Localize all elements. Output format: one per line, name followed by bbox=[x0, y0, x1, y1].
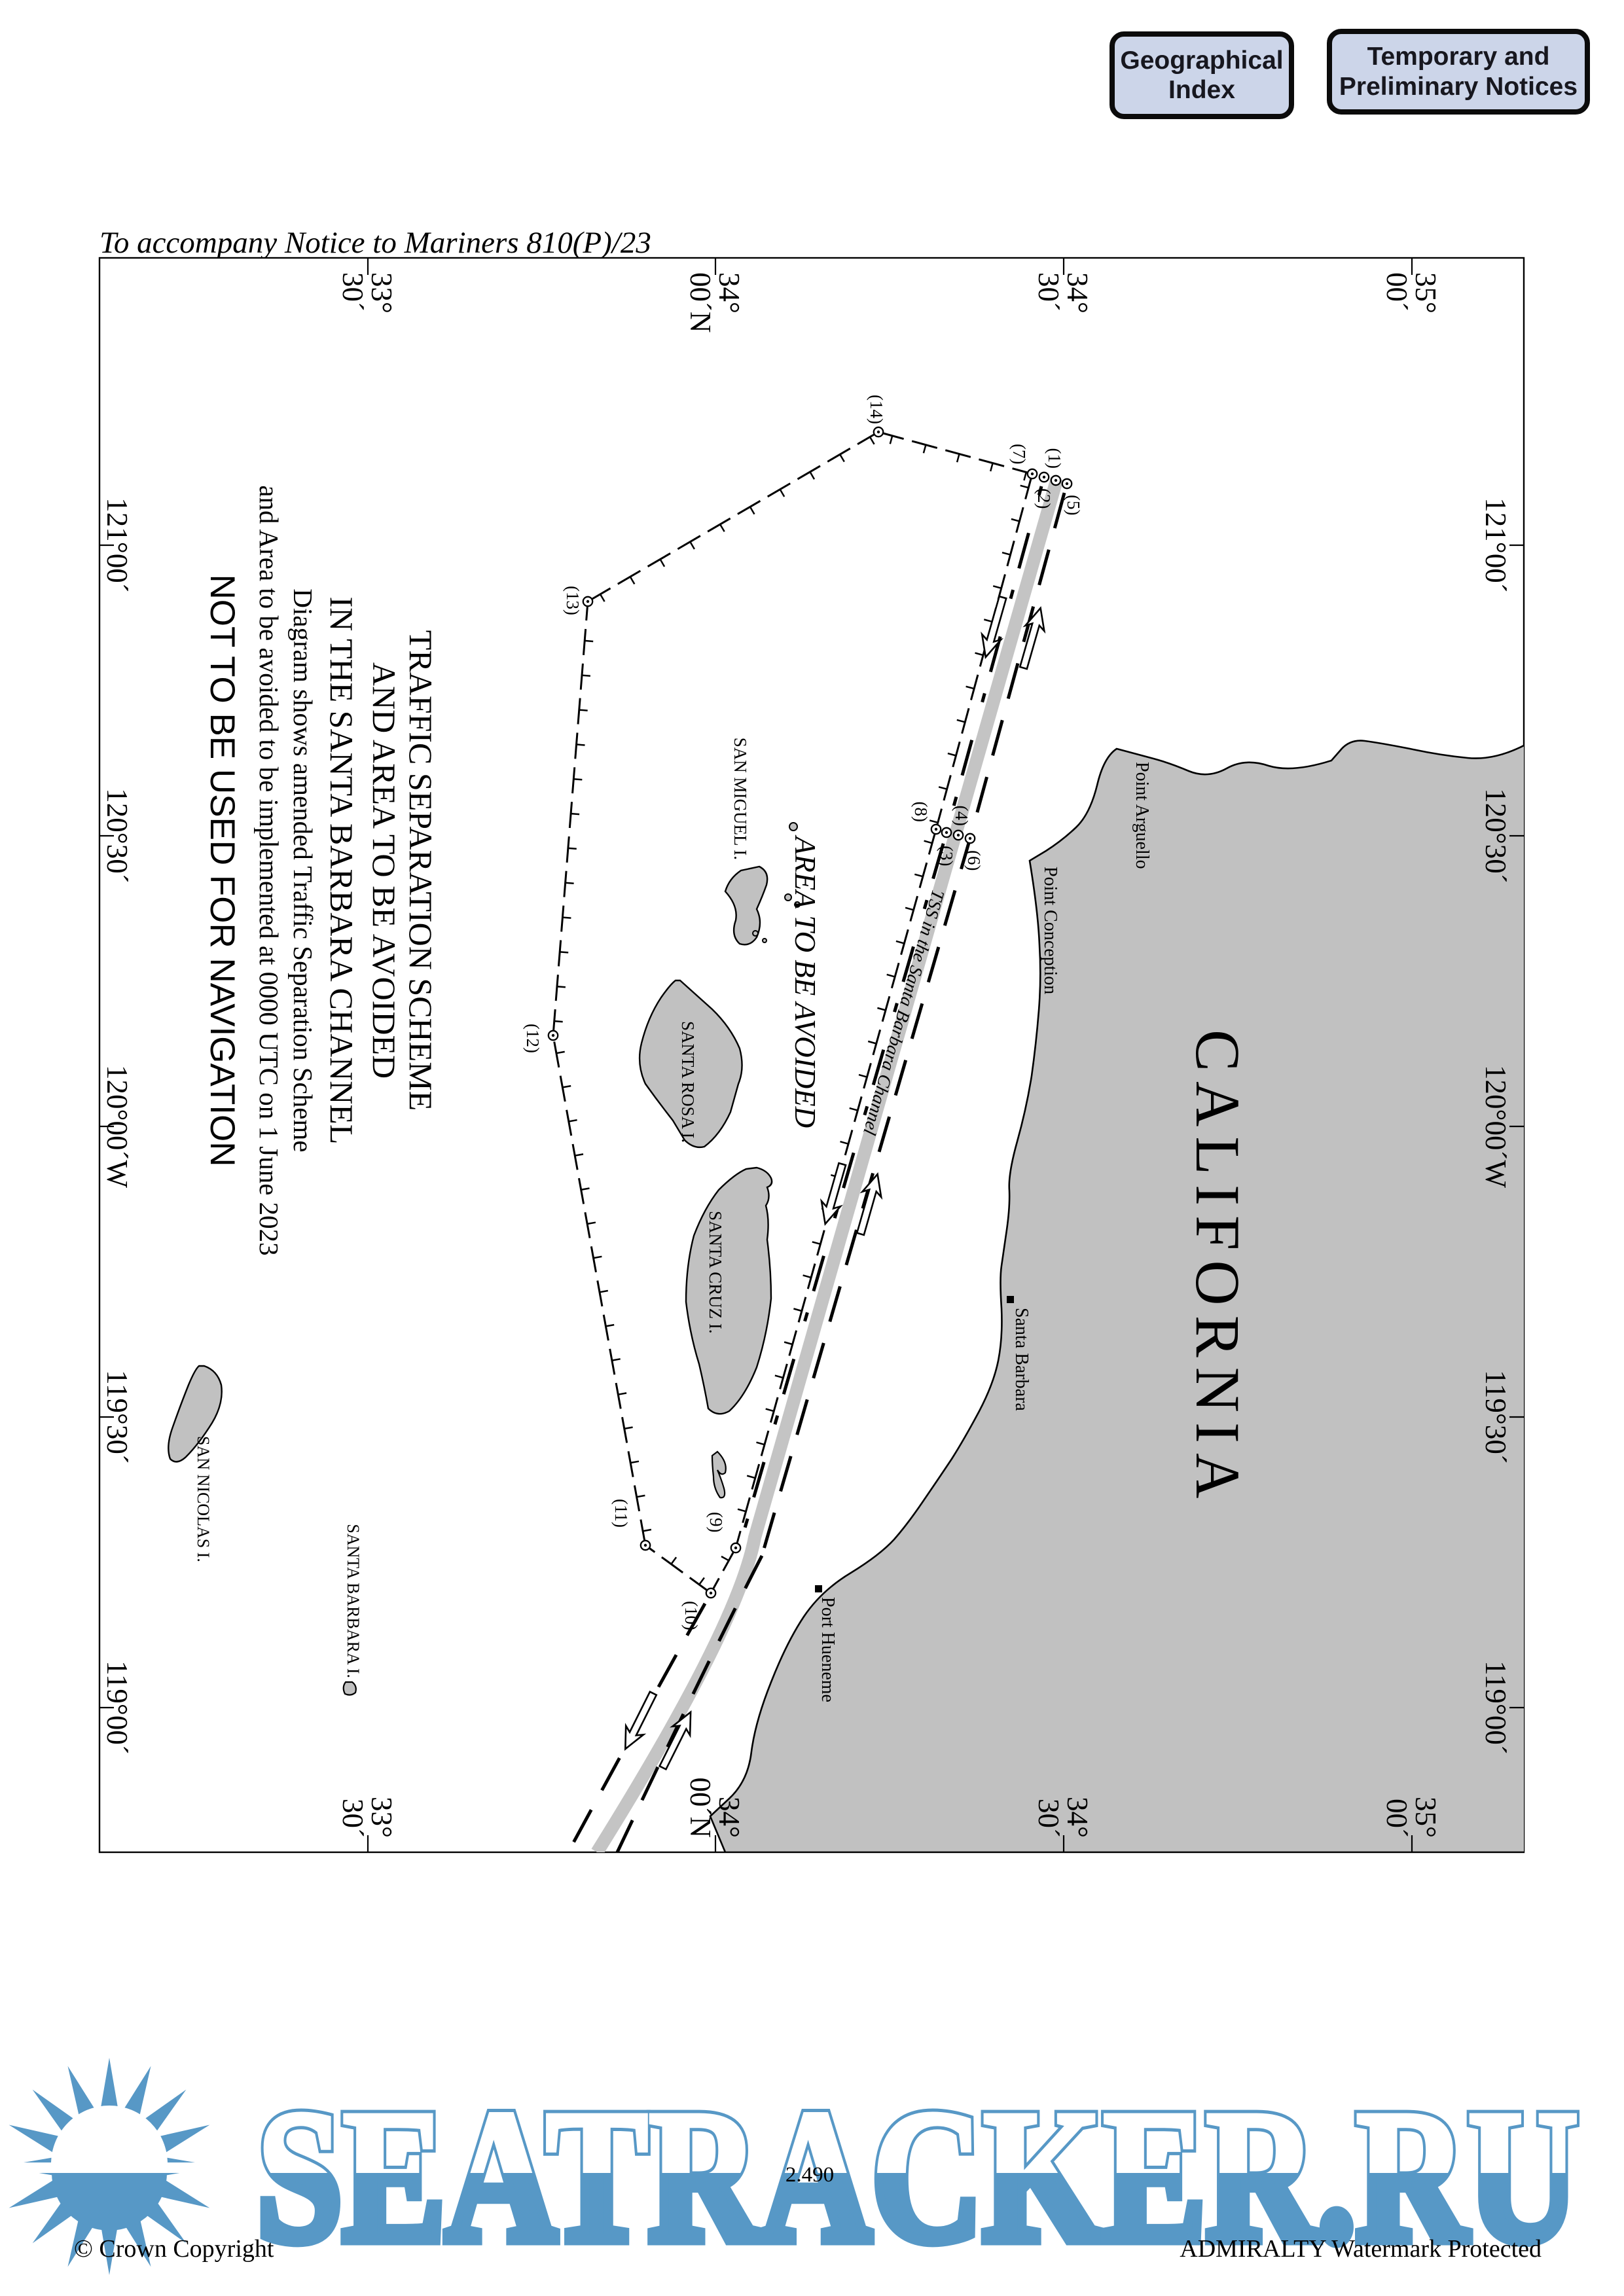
svg-text:119°30´: 119°30´ bbox=[1479, 1370, 1512, 1464]
svg-text:119°30´: 119°30´ bbox=[101, 1370, 134, 1464]
svg-text:NOT TO BE USED FOR NAVIGATION: NOT TO BE USED FOR NAVIGATION bbox=[203, 574, 242, 1166]
svg-text:30´: 30´ bbox=[336, 272, 369, 312]
svg-text:00´N: 00´N bbox=[684, 1778, 717, 1838]
svg-text:(3): (3) bbox=[937, 846, 956, 866]
svg-text:(14): (14) bbox=[867, 395, 886, 424]
svg-text:(4): (4) bbox=[952, 806, 971, 826]
svg-text:(2): (2) bbox=[1034, 488, 1054, 509]
svg-text:(13): (13) bbox=[563, 586, 583, 615]
svg-text:and Area to be avoided to be i: and Area to be avoided to be implemented… bbox=[254, 485, 284, 1255]
svg-text:120°30´: 120°30´ bbox=[1479, 788, 1512, 883]
svg-text:(12): (12) bbox=[523, 1024, 543, 1053]
svg-text:00´: 00´ bbox=[1380, 272, 1413, 312]
svg-text:30´: 30´ bbox=[1032, 272, 1065, 312]
svg-text:(5): (5) bbox=[1064, 495, 1083, 515]
svg-text:CALIFORNIA: CALIFORNIA bbox=[1183, 1030, 1253, 1508]
svg-text:(7): (7) bbox=[1009, 444, 1029, 464]
svg-text:(8): (8) bbox=[911, 802, 931, 822]
svg-text:SANTA BARBARA I.: SANTA BARBARA I. bbox=[344, 1524, 363, 1678]
svg-text:IN THE SANTA BARBARA CHANNEL: IN THE SANTA BARBARA CHANNEL bbox=[323, 597, 360, 1145]
svg-text:Diagram shows amended Traffic: Diagram shows amended Traffic Separation… bbox=[288, 588, 318, 1152]
svg-text:34°: 34° bbox=[713, 1797, 746, 1838]
svg-text:(9): (9) bbox=[706, 1512, 726, 1532]
svg-text:Point Conception: Point Conception bbox=[1040, 867, 1060, 994]
svg-text:(6): (6) bbox=[964, 850, 984, 870]
svg-text:121°00´: 121°00´ bbox=[101, 497, 134, 592]
svg-text:Port Hueneme: Port Hueneme bbox=[818, 1597, 838, 1702]
svg-text:34°: 34° bbox=[1061, 272, 1094, 314]
svg-text:30´: 30´ bbox=[336, 1799, 369, 1838]
svg-text:119°00´: 119°00´ bbox=[101, 1660, 134, 1755]
svg-text:00´: 00´ bbox=[1380, 1799, 1413, 1838]
svg-text:AND AREA TO BE AVOIDED: AND AREA TO BE AVOIDED bbox=[366, 662, 403, 1079]
svg-text:SANTA ROSA I.: SANTA ROSA I. bbox=[678, 1021, 698, 1143]
svg-text:Santa Barbara: Santa Barbara bbox=[1011, 1308, 1032, 1411]
svg-text:120°00´W: 120°00´W bbox=[1479, 1065, 1512, 1188]
svg-text:SAN MIGUEL I.: SAN MIGUEL I. bbox=[731, 738, 750, 860]
svg-text:ADMIRALTY Watermark Protected: ADMIRALTY Watermark Protected bbox=[1180, 2235, 1542, 2263]
svg-text:30´: 30´ bbox=[1032, 1799, 1065, 1838]
svg-text:TRAFFIC SEPARATION SCHEME: TRAFFIC SEPARATION SCHEME bbox=[403, 630, 439, 1111]
svg-text:35°: 35° bbox=[1409, 272, 1442, 314]
svg-text:33°: 33° bbox=[365, 272, 398, 314]
svg-text:© Crown Copyright: © Crown Copyright bbox=[74, 2235, 274, 2263]
svg-text:(1): (1) bbox=[1045, 448, 1064, 469]
svg-text:SANTA CRUZ I.: SANTA CRUZ I. bbox=[706, 1211, 725, 1334]
svg-text:2.490: 2.490 bbox=[785, 2163, 834, 2187]
svg-text:34°: 34° bbox=[1061, 1797, 1094, 1838]
svg-text:120°00´W: 120°00´W bbox=[101, 1065, 134, 1188]
svg-text:(10): (10) bbox=[681, 1601, 701, 1630]
svg-text:35°: 35° bbox=[1409, 1797, 1442, 1838]
svg-text:121°00´: 121°00´ bbox=[1479, 497, 1512, 592]
svg-text:AREA TO BE AVOIDED: AREA TO BE AVOIDED bbox=[789, 834, 821, 1128]
svg-text:SAN NICOLAS I.: SAN NICOLAS I. bbox=[194, 1436, 213, 1562]
svg-text:34°: 34° bbox=[713, 272, 746, 314]
svg-text:(11): (11) bbox=[611, 1499, 631, 1528]
svg-text:Point Arguello: Point Arguello bbox=[1132, 762, 1152, 869]
svg-text:120°30´: 120°30´ bbox=[101, 788, 134, 883]
svg-text:119°00´: 119°00´ bbox=[1479, 1660, 1512, 1755]
svg-text:33°: 33° bbox=[365, 1797, 398, 1838]
svg-text:00´N: 00´N bbox=[684, 272, 717, 332]
